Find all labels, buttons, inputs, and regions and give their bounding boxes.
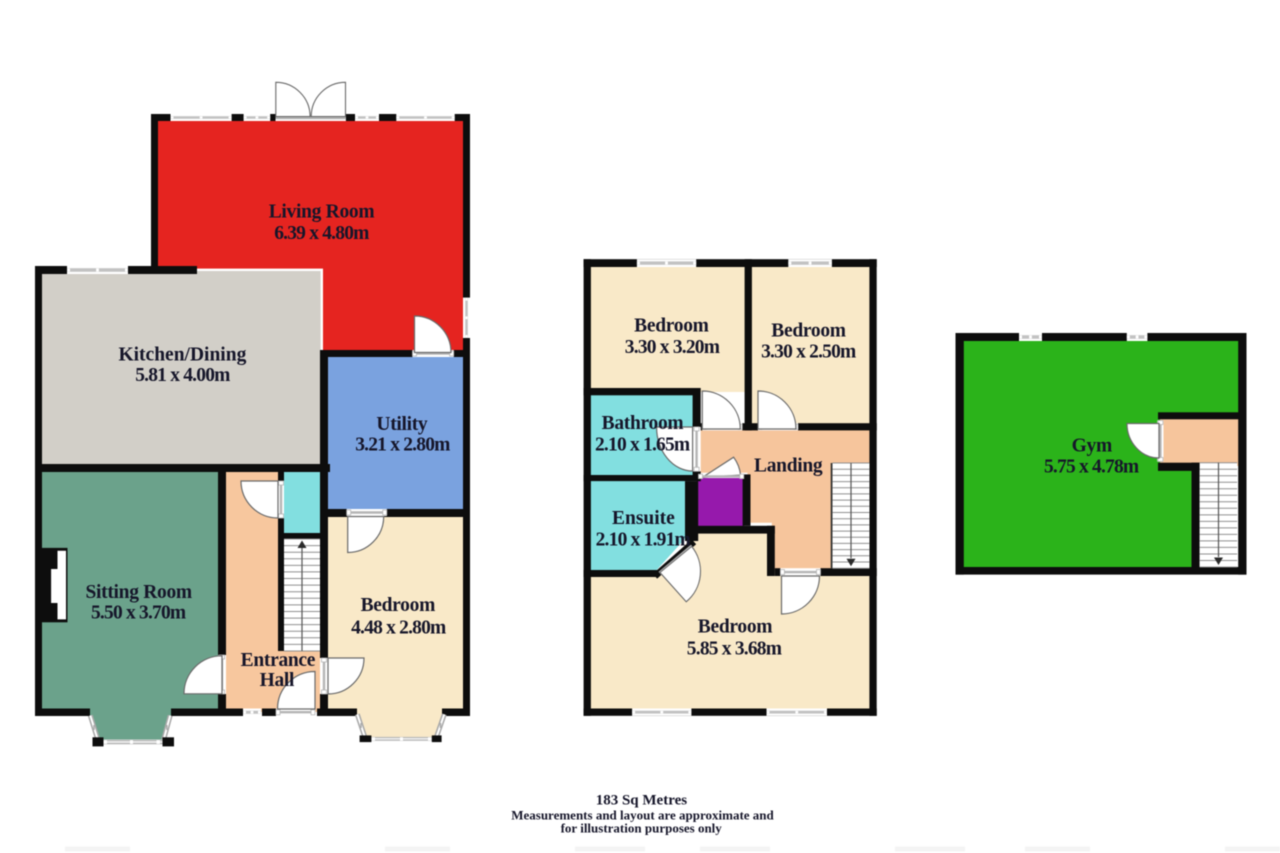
svg-text:Landing: Landing xyxy=(754,456,823,477)
svg-text:3.30 x 3.20m: 3.30 x 3.20m xyxy=(625,337,720,358)
svg-text:Hall: Hall xyxy=(260,670,295,691)
svg-text:4.48 x 2.80m: 4.48 x 2.80m xyxy=(351,618,446,639)
svg-text:Kitchen/Dining: Kitchen/Dining xyxy=(118,345,246,366)
svg-text:Bedroom: Bedroom xyxy=(361,595,436,616)
svg-text:Sitting Room: Sitting Room xyxy=(86,582,192,603)
svg-text:2.10 x 1.65m: 2.10 x 1.65m xyxy=(595,435,690,456)
svg-text:for illustration purposes only: for illustration purposes only xyxy=(561,820,723,835)
svg-text:Utility: Utility xyxy=(376,414,428,435)
svg-text:5.81 x 4.00m: 5.81 x 4.00m xyxy=(135,365,230,386)
svg-text:6.39 x 4.80m: 6.39 x 4.80m xyxy=(274,223,369,244)
svg-text:3.30 x 2.50m: 3.30 x 2.50m xyxy=(761,342,856,363)
svg-text:3.21 x 2.80m: 3.21 x 2.80m xyxy=(355,435,450,456)
svg-text:5.85 x 3.68m: 5.85 x 3.68m xyxy=(687,638,782,659)
svg-text:2.10 x 1.91m: 2.10 x 1.91m xyxy=(596,530,691,551)
svg-text:5.50 x 3.70m: 5.50 x 3.70m xyxy=(91,603,186,624)
svg-text:183 Sq Metres: 183 Sq Metres xyxy=(596,793,688,809)
svg-text:Bedroom: Bedroom xyxy=(771,321,846,342)
svg-text:Bathroom: Bathroom xyxy=(602,413,684,434)
svg-text:Ensuite: Ensuite xyxy=(612,508,675,529)
svg-text:Bedroom: Bedroom xyxy=(698,617,773,638)
svg-text:Entrance: Entrance xyxy=(241,650,316,671)
svg-text:Bedroom: Bedroom xyxy=(634,315,709,336)
svg-text:5.75 x 4.78m: 5.75 x 4.78m xyxy=(1044,457,1139,478)
svg-text:Living Room: Living Room xyxy=(269,201,375,222)
svg-text:Gym: Gym xyxy=(1072,436,1112,457)
